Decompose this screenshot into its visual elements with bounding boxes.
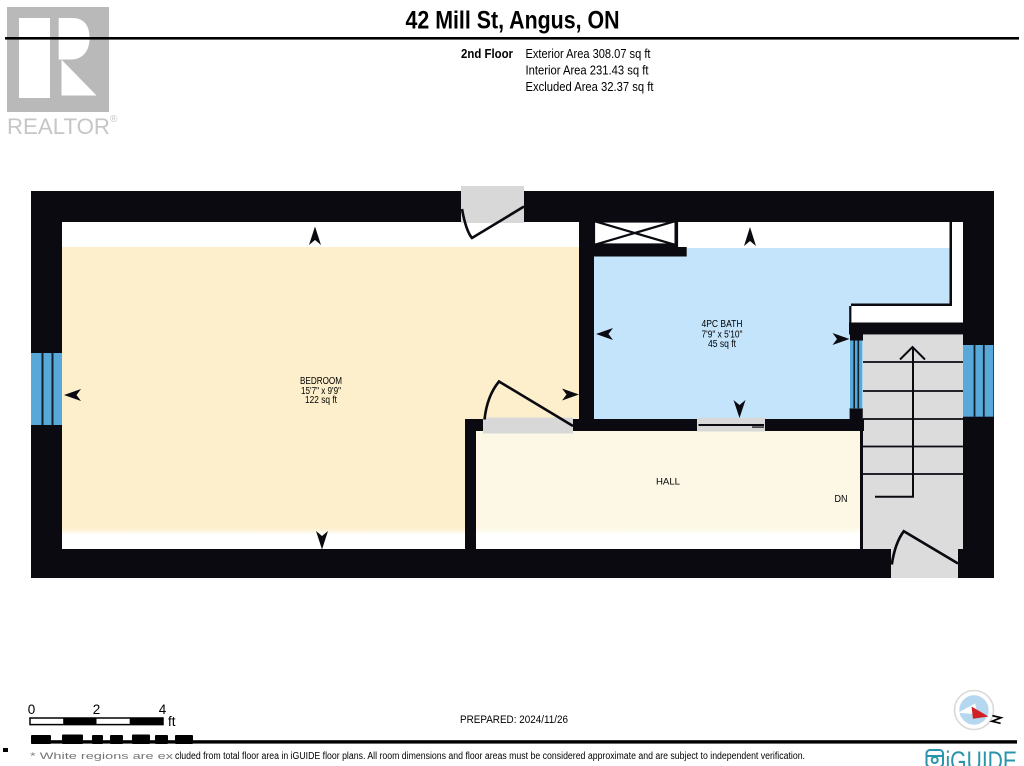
svg-text:0: 0 — [28, 702, 36, 717]
svg-text:ft: ft — [168, 714, 176, 729]
svg-text:45 sq ft: 45 sq ft — [708, 339, 736, 350]
svg-text:DN: DN — [835, 494, 848, 505]
svg-text:REALTOR: REALTOR — [7, 114, 110, 139]
svg-text:®: ® — [110, 114, 118, 125]
svg-text:HALL: HALL — [656, 476, 680, 486]
svg-text:* White regions are ex: * White regions are ex — [30, 751, 174, 761]
svg-text:4: 4 — [159, 702, 167, 717]
svg-text:42 Mill St, Angus, ON: 42 Mill St, Angus, ON — [406, 7, 620, 35]
svg-text:2: 2 — [93, 702, 101, 717]
svg-text:Excluded Area 32.37 sq ft: Excluded Area 32.37 sq ft — [526, 79, 654, 94]
svg-text:2nd Floor: 2nd Floor — [461, 46, 513, 61]
svg-text:PREPARED: 2024/11/26: PREPARED: 2024/11/26 — [460, 714, 568, 726]
svg-text:Interior Area 231.43 sq ft: Interior Area 231.43 sq ft — [526, 63, 649, 78]
svg-text:122 sq ft: 122 sq ft — [305, 395, 337, 406]
svg-text:cluded from total floor area i: cluded from total floor area in iGUIDE f… — [175, 751, 805, 762]
svg-text:Exterior Area 308.07 sq ft: Exterior Area 308.07 sq ft — [526, 46, 651, 61]
svg-text:iGUIDE: iGUIDE — [946, 746, 1018, 766]
